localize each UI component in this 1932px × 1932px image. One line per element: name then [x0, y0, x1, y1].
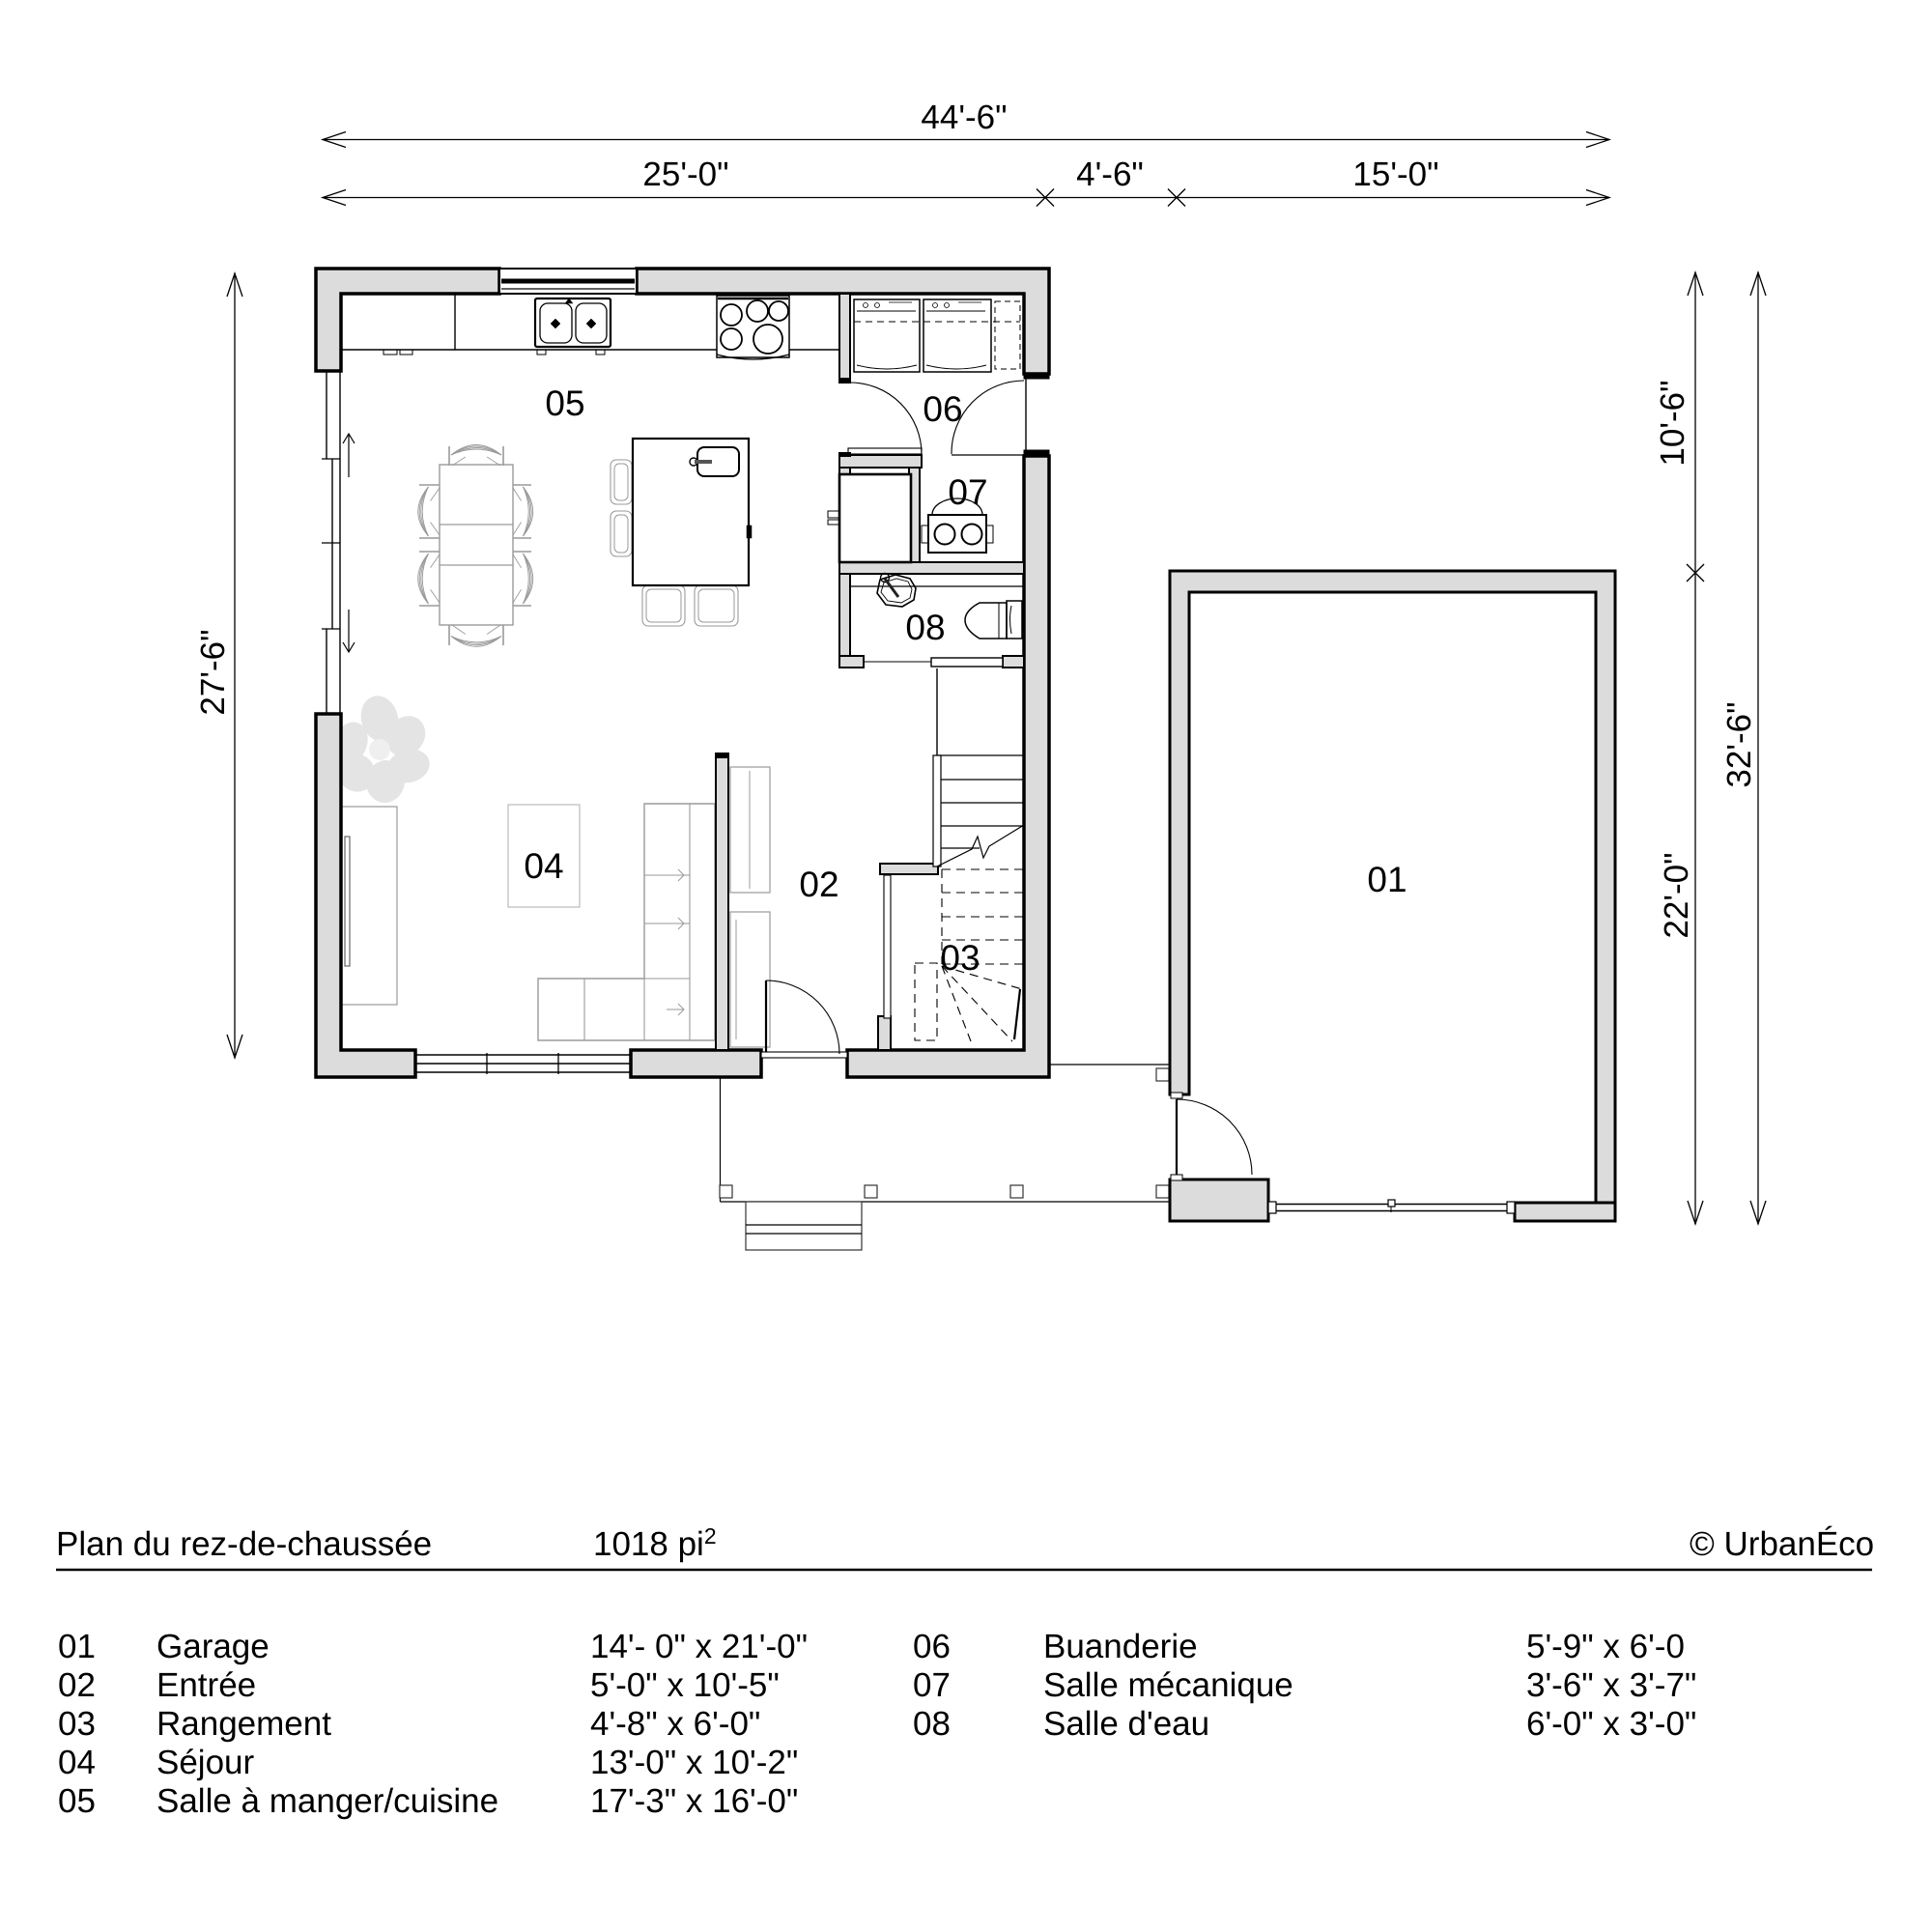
- svg-text:06: 06: [923, 389, 962, 429]
- svg-text:10'-6": 10'-6": [1654, 380, 1691, 466]
- svg-text:04: 04: [524, 846, 563, 886]
- svg-text:Entrée: Entrée: [156, 1666, 256, 1704]
- svg-text:5'-9" x 6'-0: 5'-9" x 6'-0: [1526, 1628, 1685, 1665]
- svg-text:27'-6": 27'-6": [194, 629, 232, 715]
- svg-text:05: 05: [545, 384, 584, 423]
- svg-text:17'-3" x 16'-0": 17'-3" x 16'-0": [590, 1782, 798, 1820]
- svg-text:1018 pi2: 1018 pi2: [593, 1523, 717, 1563]
- svg-text:25'-0": 25'-0": [642, 156, 728, 193]
- svg-text:6'-0" x 3'-0": 6'-0" x 3'-0": [1526, 1705, 1696, 1743]
- svg-text:22'-0": 22'-0": [1658, 852, 1695, 938]
- svg-text:44'-6": 44'-6": [921, 99, 1007, 136]
- svg-text:07: 07: [913, 1666, 951, 1704]
- svg-text:Rangement: Rangement: [156, 1705, 331, 1743]
- svg-text:03: 03: [58, 1705, 96, 1743]
- svg-text:01: 01: [58, 1628, 96, 1665]
- svg-text:02: 02: [58, 1666, 96, 1704]
- svg-text:13'-0" x 10'-2": 13'-0" x 10'-2": [590, 1744, 798, 1781]
- svg-text:04: 04: [58, 1744, 96, 1781]
- svg-text:14'- 0" x 21'-0": 14'- 0" x 21'-0": [590, 1628, 808, 1665]
- svg-text:Garage: Garage: [156, 1628, 270, 1665]
- svg-text:06: 06: [913, 1628, 951, 1665]
- svg-text:4'-6": 4'-6": [1076, 156, 1144, 193]
- svg-text:3'-6" x 3'-7": 3'-6" x 3'-7": [1526, 1666, 1696, 1704]
- svg-text:15'-0": 15'-0": [1352, 156, 1438, 193]
- svg-text:07: 07: [948, 472, 987, 512]
- svg-text:08: 08: [905, 608, 945, 647]
- svg-text:Plan du rez-de-chaussée: Plan du rez-de-chaussée: [56, 1525, 432, 1563]
- svg-text:Salle d'eau: Salle d'eau: [1043, 1705, 1209, 1743]
- svg-text:03: 03: [940, 938, 980, 978]
- svg-text:02: 02: [799, 865, 838, 904]
- svg-text:01: 01: [1367, 860, 1406, 899]
- svg-text:© UrbanÉco: © UrbanÉco: [1690, 1525, 1874, 1563]
- svg-text:Séjour: Séjour: [156, 1744, 255, 1781]
- svg-text:Salle à manger/cuisine: Salle à manger/cuisine: [156, 1782, 498, 1820]
- svg-text:5'-0" x 10'-5": 5'-0" x 10'-5": [590, 1666, 780, 1704]
- svg-text:32'-6": 32'-6": [1720, 701, 1758, 787]
- svg-text:4'-8" x 6'-0": 4'-8" x 6'-0": [590, 1705, 760, 1743]
- svg-text:05: 05: [58, 1782, 96, 1820]
- svg-text:Buanderie: Buanderie: [1043, 1628, 1198, 1665]
- svg-text:08: 08: [913, 1705, 951, 1743]
- svg-text:Salle mécanique: Salle mécanique: [1043, 1666, 1293, 1704]
